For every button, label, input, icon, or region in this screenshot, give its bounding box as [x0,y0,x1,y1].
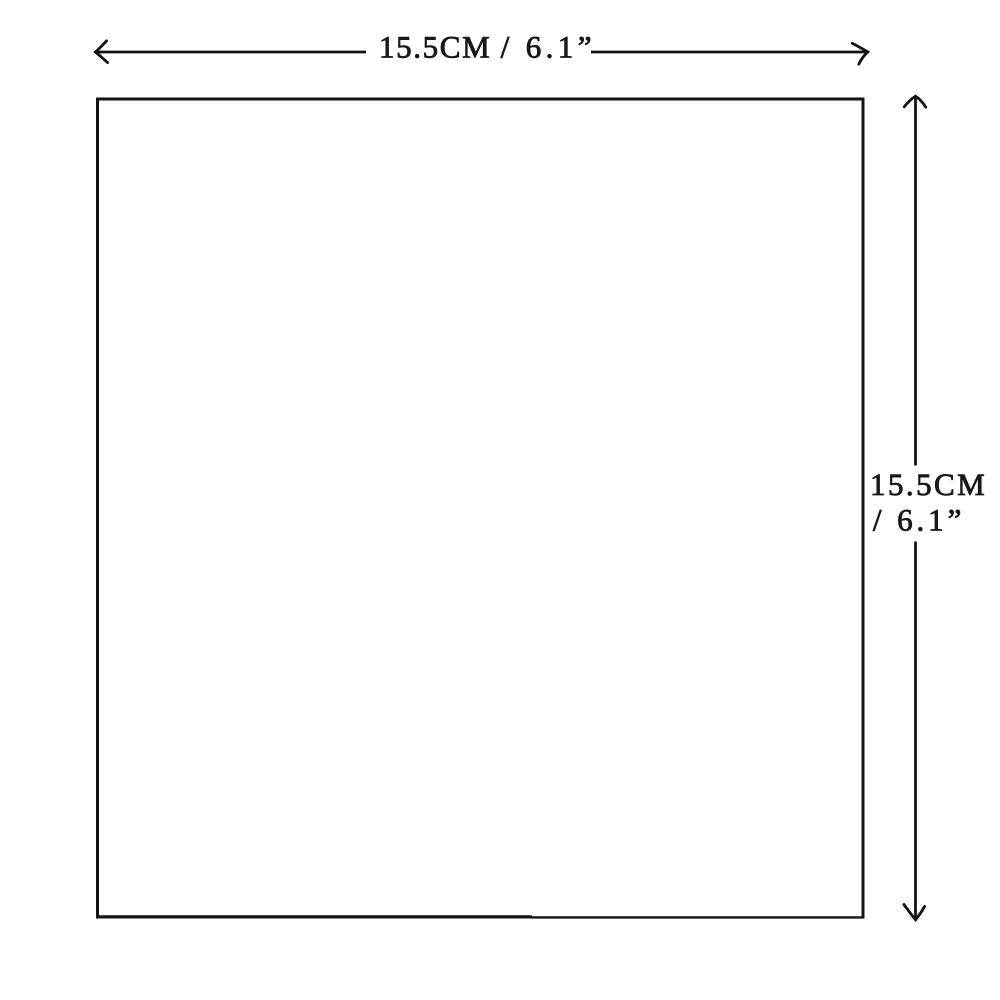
svg-text:/ 6.1”: / 6.1” [501,30,596,65]
svg-text:15.5CM: 15.5CM [379,30,491,65]
svg-text:/ 6.1”: / 6.1” [873,503,965,538]
svg-text:15.5CM: 15.5CM [870,467,987,502]
